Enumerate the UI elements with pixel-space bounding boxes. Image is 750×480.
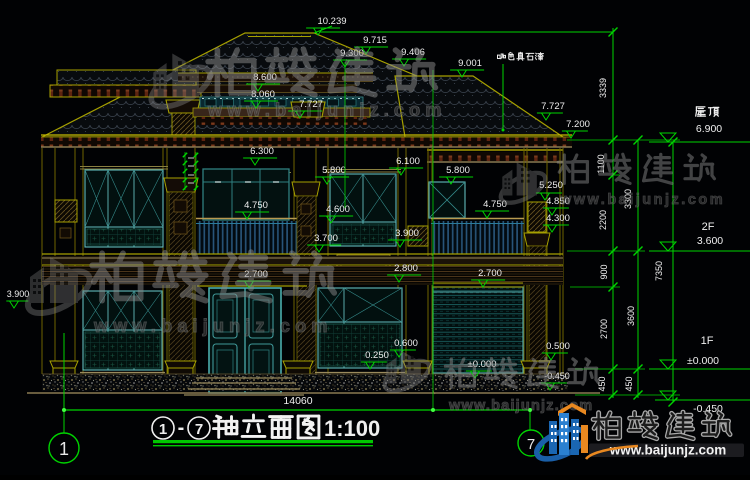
svg-text:6.300: 6.300 — [250, 146, 274, 157]
svg-text:9.715: 9.715 — [363, 35, 387, 46]
svg-text:2700: 2700 — [599, 319, 609, 339]
svg-text:7350: 7350 — [654, 261, 664, 281]
svg-text:3.900: 3.900 — [7, 289, 30, 299]
svg-text:1: 1 — [159, 421, 167, 438]
svg-text:6.900: 6.900 — [696, 123, 722, 135]
svg-text:3339: 3339 — [598, 78, 608, 98]
svg-text:4.300: 4.300 — [546, 213, 570, 224]
svg-text:9.001: 9.001 — [458, 58, 482, 69]
svg-text:14060: 14060 — [283, 395, 312, 407]
svg-text:7.200: 7.200 — [566, 119, 590, 130]
svg-text:7: 7 — [527, 436, 535, 453]
svg-text:0.250: 0.250 — [365, 350, 389, 361]
svg-text:2.700: 2.700 — [478, 268, 502, 279]
svg-text:-: - — [178, 417, 185, 439]
svg-text:5.800: 5.800 — [322, 165, 346, 176]
svg-text:6.100: 6.100 — [396, 156, 420, 167]
svg-text:1:100: 1:100 — [324, 416, 380, 441]
svg-text:10.239: 10.239 — [317, 16, 346, 27]
svg-text:3600: 3600 — [626, 306, 636, 326]
svg-text:1: 1 — [59, 439, 69, 459]
svg-text:±0.000: ±0.000 — [687, 355, 719, 367]
svg-text:2.800: 2.800 — [394, 263, 418, 274]
svg-text:2F: 2F — [702, 221, 715, 233]
svg-text:www.baijunjz.com: www.baijunjz.com — [93, 316, 333, 336]
svg-text:7.727: 7.727 — [541, 101, 565, 112]
svg-text:900: 900 — [599, 264, 609, 279]
svg-text:3.600: 3.600 — [697, 235, 723, 247]
svg-text:1F: 1F — [701, 335, 714, 347]
svg-text:4.600: 4.600 — [326, 204, 350, 215]
svg-text:0.600: 0.600 — [394, 338, 418, 349]
svg-text:www.baijunjz.com: www.baijunjz.com — [559, 192, 725, 208]
svg-text:7: 7 — [195, 421, 203, 438]
svg-text:3.900: 3.900 — [395, 228, 419, 239]
svg-text:www.baijunjz.com: www.baijunjz.com — [609, 443, 727, 458]
svg-text:0.500: 0.500 — [546, 341, 570, 352]
svg-text:2200: 2200 — [598, 210, 608, 230]
svg-text:www.baijunjz.com: www.baijunjz.com — [207, 100, 447, 120]
svg-text:5.800: 5.800 — [446, 165, 470, 176]
svg-text:450: 450 — [624, 376, 634, 391]
svg-text:4.750: 4.750 — [244, 200, 268, 211]
svg-text:3.700: 3.700 — [314, 233, 338, 244]
